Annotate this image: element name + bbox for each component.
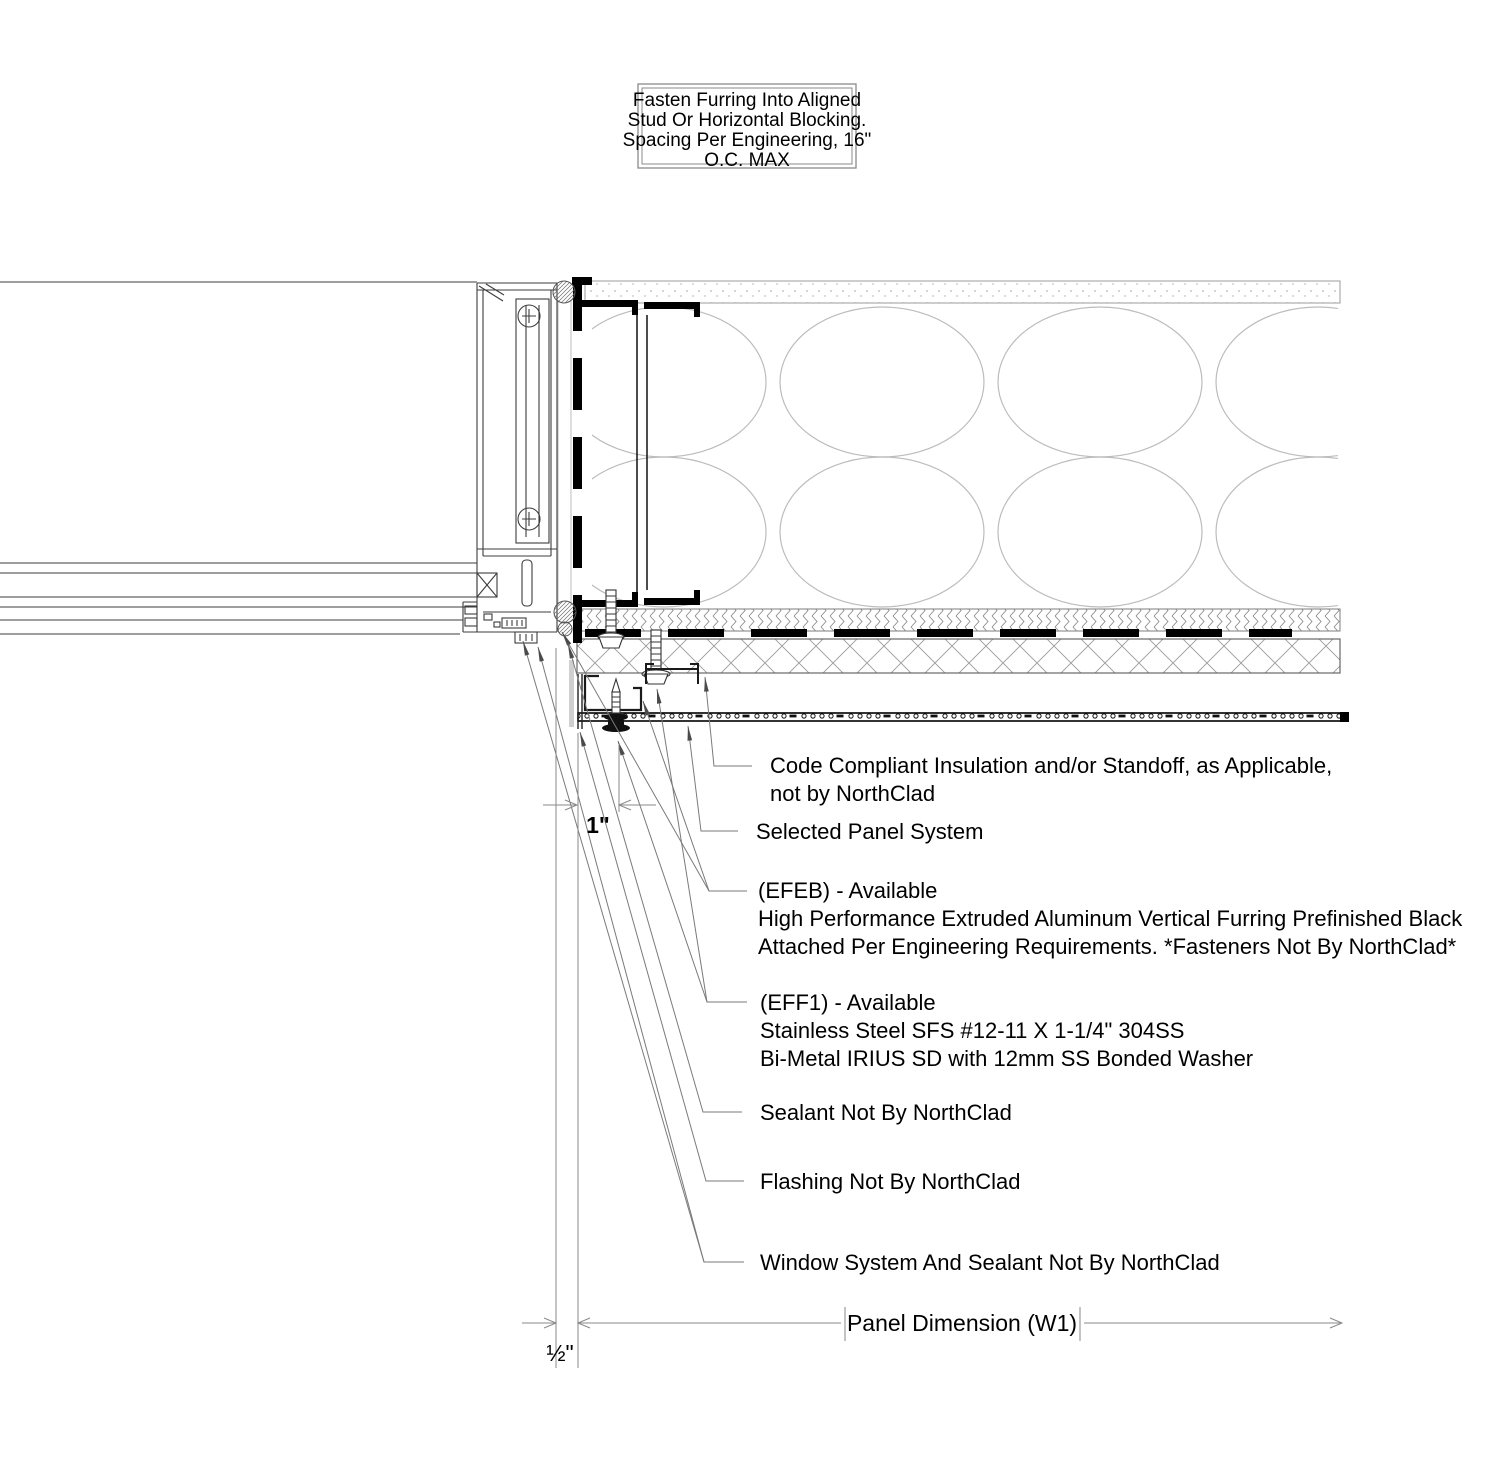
eff1-panel-screw [602, 679, 630, 732]
leader-flashing [580, 732, 744, 1181]
leader-eff1-2 [657, 689, 707, 1002]
drawing-sheet: 1" ½" Panel Dimension (W1) Fasten Furrin… [0, 0, 1500, 1469]
glazing-unit [0, 563, 497, 634]
callout-efeb-1: (EFEB) - Available [758, 878, 937, 903]
callout-window-system: Window System And Sealant Not By NorthCl… [760, 1250, 1220, 1275]
callout-eff1-3: Bi-Metal IRIUS SD with 12mm SS Bonded Wa… [760, 1046, 1253, 1071]
furring-note-box: Fasten Furring Into Aligned Stud Or Hori… [623, 84, 872, 171]
leader-lines [523, 632, 752, 1262]
callout-selected-panel: Selected Panel System [756, 819, 983, 844]
sheathing-stipple-band [585, 281, 1340, 303]
callout-eff1-2: Stainless Steel SFS #12-11 X 1-1/4" 304S… [760, 1018, 1184, 1043]
insulation-crosshatch-band [577, 639, 1340, 673]
callout-flashing: Flashing Not By NorthClad [760, 1169, 1020, 1194]
efeb-vertical-furring [572, 277, 1292, 643]
leader-eff1-1 [618, 741, 747, 1002]
leader-efeb-2 [643, 701, 709, 891]
sheathing-zigzag-band [580, 609, 1340, 631]
callout-efeb-2: High Performance Extruded Aluminum Verti… [758, 906, 1463, 931]
head-detail-drawing: 1" ½" Panel Dimension (W1) Fasten Furrin… [0, 0, 1500, 1469]
panel-face-band [578, 712, 1349, 722]
callout-code-compliant-2: not by NorthClad [770, 781, 935, 806]
dim-furring-depth: 1" [586, 812, 610, 838]
note-line-3: Spacing Per Engineering, 16" [623, 130, 872, 151]
callout-sealant: Sealant Not By NorthClad [760, 1100, 1012, 1125]
note-line-2: Stud Or Horizontal Blocking. [628, 110, 867, 131]
callout-eff1-1: (EFF1) - Available [760, 990, 936, 1015]
note-line-1: Fasten Furring Into Aligned [633, 90, 861, 111]
dim-joint-width: ½" [546, 1340, 573, 1366]
sealant-joint-faces [558, 300, 571, 605]
batt-insulation-symbol [562, 307, 1420, 607]
dim-panel-width: Panel Dimension (W1) [847, 1310, 1077, 1336]
callout-labels: Code Compliant Insulation and/or Standof… [756, 753, 1463, 1275]
callout-code-compliant-1: Code Compliant Insulation and/or Standof… [770, 753, 1332, 778]
note-line-4: O.C. MAX [704, 150, 790, 171]
window-frame-section [0, 282, 557, 643]
leader-window-2 [538, 647, 704, 1262]
leader-selected-panel [688, 726, 738, 831]
callout-efeb-3: Attached Per Engineering Requirements. *… [758, 934, 1457, 959]
